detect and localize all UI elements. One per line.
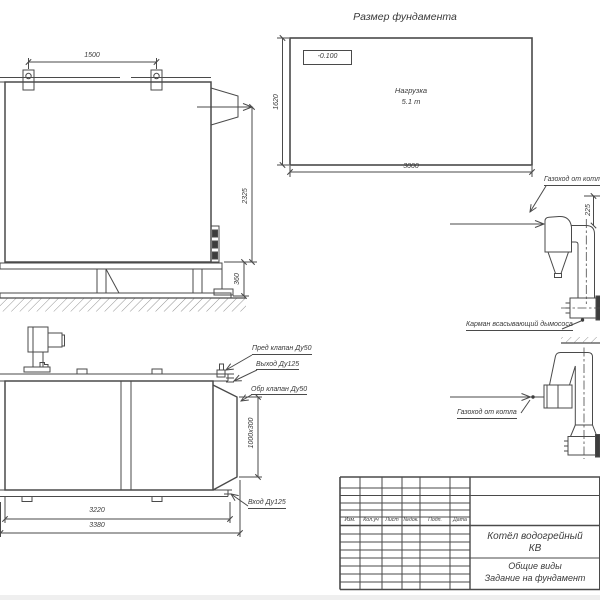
dim-3380-label: 3380 [77,522,117,530]
upper-flue-drawing [450,186,600,329]
ground-hatch [0,299,246,312]
doc-type-line2: Задание на фундамент [472,573,598,583]
product-name-line1: Котёл водогрейный [472,531,598,543]
plan-view-drawing [0,327,262,537]
callout-outlet: Выход Ду125 [256,361,299,371]
titleblock-header-koluch: Кол.уч [360,518,382,524]
dim-3000-label: 3000 [391,163,431,171]
titleblock-header-data: Дата [450,518,470,524]
suction-pocket-label: Карман всасывающий дымососа [466,321,573,331]
side-view-drawing [0,58,257,312]
load-label: Нагрузка [371,87,451,96]
foundation-title: Размер фундамента [320,11,490,23]
dim-360-label: 360 [234,273,242,285]
sheet-edge [0,595,600,600]
product-name-line2: КВ [472,543,598,555]
flue-elbow [550,353,593,426]
doc-type-line1: Общие виды [472,561,598,571]
elevation-mark: -0.100 [303,50,352,65]
boiler-plan-body [5,381,213,490]
callout-inlet: Вход Ду125 [248,499,286,509]
dim-1620-label: 1620 [273,94,281,110]
dim-2325-label: 2325 [242,188,250,204]
flue-duct-label-upper: Газоход от котла [544,176,600,186]
titleblock-header-list: Лист [382,518,402,524]
titleblock-header-ndok: №док. [402,518,420,524]
callout-check-valve: Обр клапан Ду50 [251,386,307,396]
dim-225-label: 225 [585,204,593,216]
dim-3220-label: 3220 [77,507,117,515]
suction-pocket [545,216,572,252]
burner [28,327,48,352]
dim-1000x300-label: 1000х300 [248,418,256,449]
collector [213,385,237,490]
wall-hatch [561,337,600,343]
lower-flue-drawing [450,337,600,459]
boiler-body [5,82,211,262]
titleblock-header-izm: Изм. [340,518,360,524]
drawing-sheet: Размер фундамента -0.100 Нагрузка 5.1 т … [0,0,600,600]
callout-safety-valve: Пред клапан Ду50 [252,345,312,355]
titleblock-header-podp: Подп. [420,518,450,524]
flue-duct-label-lower: Газоход от котла [457,409,517,419]
dim-1500-label: 1500 [72,52,112,60]
load-value: 5.1 т [371,98,451,107]
